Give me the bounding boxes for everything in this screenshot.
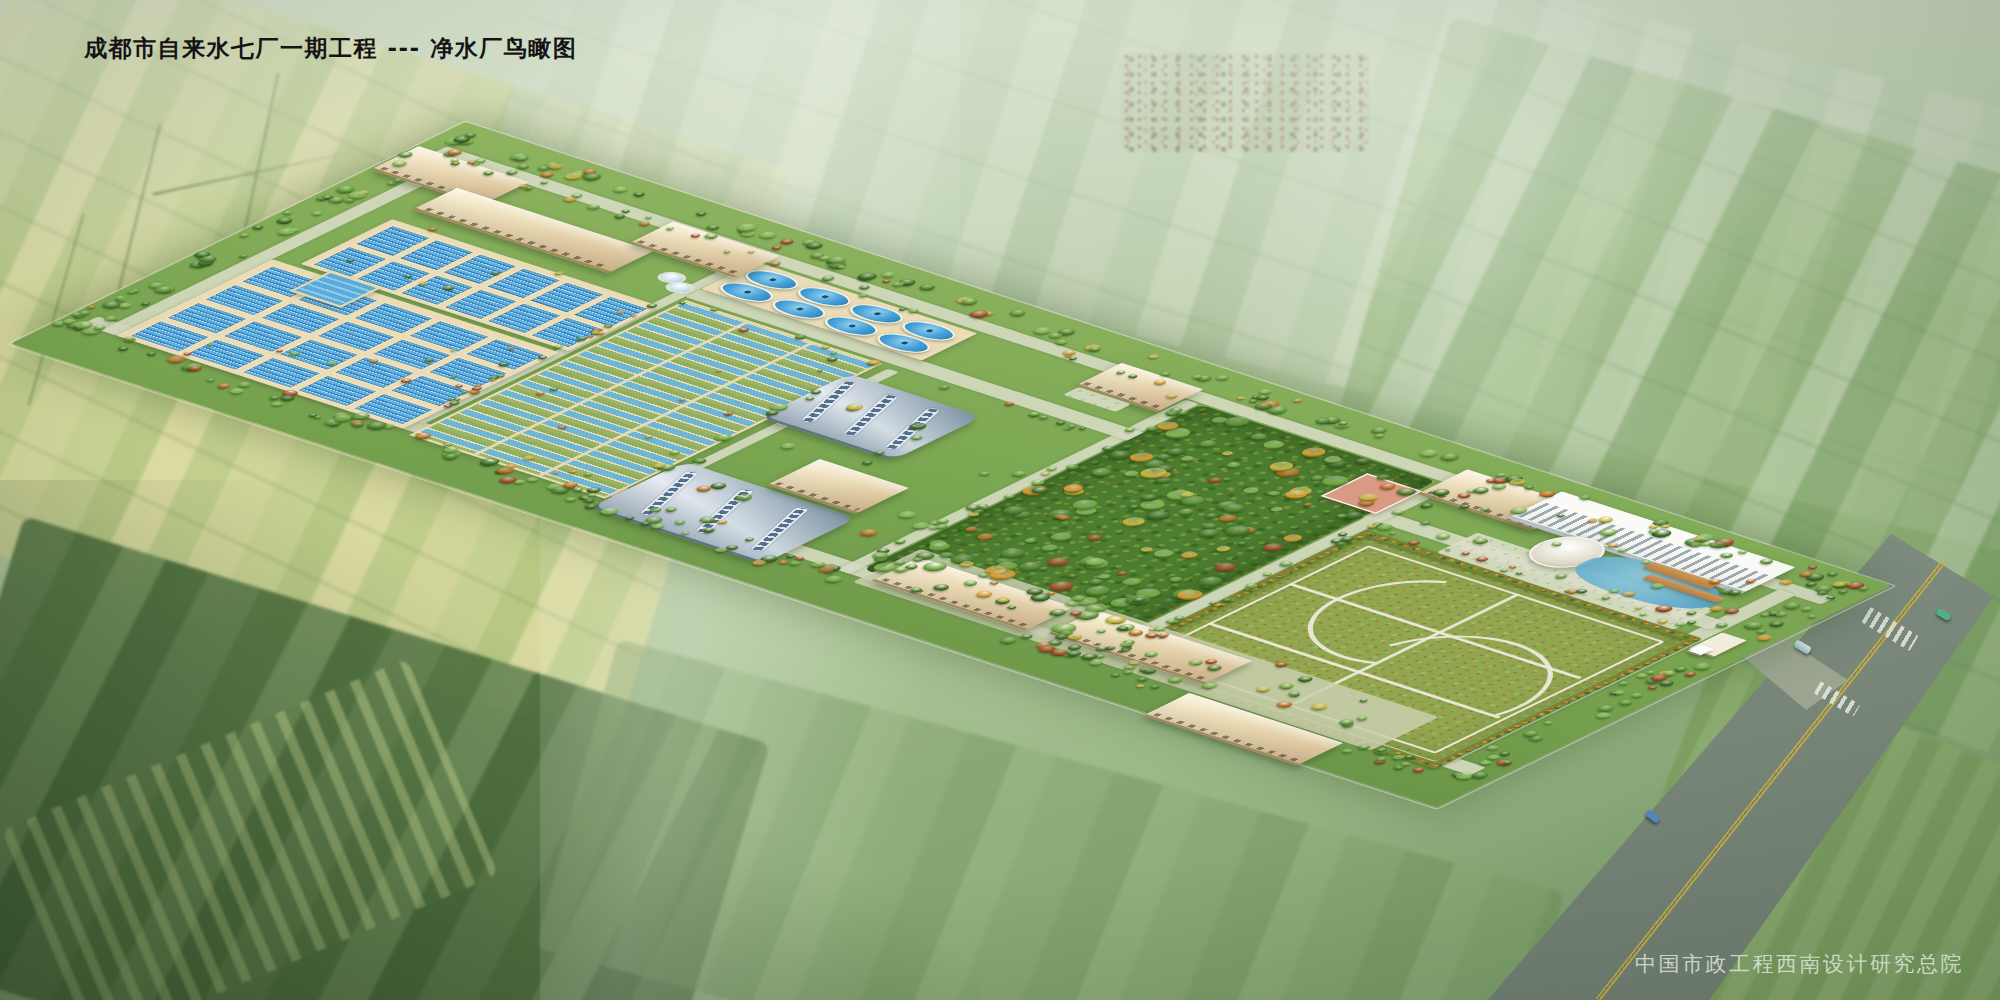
- car-green: [1935, 608, 1951, 622]
- drawing-title: 成都市自来水七厂一期工程 --- 净水厂鸟瞰图: [84, 33, 577, 64]
- aerial-rendering-canvas: 成都市自来水七厂一期工程 --- 净水厂鸟瞰图 中国市政工程西南设计研究总院: [0, 0, 2000, 1000]
- farm-fields-southwest: [0, 516, 770, 1000]
- clarifier-mechanism: [899, 341, 908, 345]
- clarifier-mechanism: [795, 307, 804, 311]
- clarifier-mechanism: [768, 278, 777, 282]
- skylight: [842, 394, 899, 436]
- skylight: [750, 507, 810, 552]
- plowed-field-stripes: [2, 658, 499, 1000]
- car-blue: [1644, 809, 1660, 824]
- clarifier-mechanism: [925, 329, 934, 333]
- clarifier-mechanism: [872, 312, 881, 316]
- clarifier-mechanism: [847, 324, 856, 328]
- clarifier-mechanism: [820, 295, 829, 299]
- clarifier-mechanism: [742, 290, 751, 294]
- crosswalk: [1861, 607, 1918, 651]
- treatment-plant-site: [65, 135, 1858, 783]
- crosswalk: [1814, 681, 1861, 717]
- car-white: [1793, 639, 1812, 654]
- distant-village: [1120, 52, 1370, 152]
- farm-fields-southeast: [1597, 655, 2000, 1000]
- design-institute-credit: 中国市政工程西南设计研究总院: [1635, 950, 1964, 978]
